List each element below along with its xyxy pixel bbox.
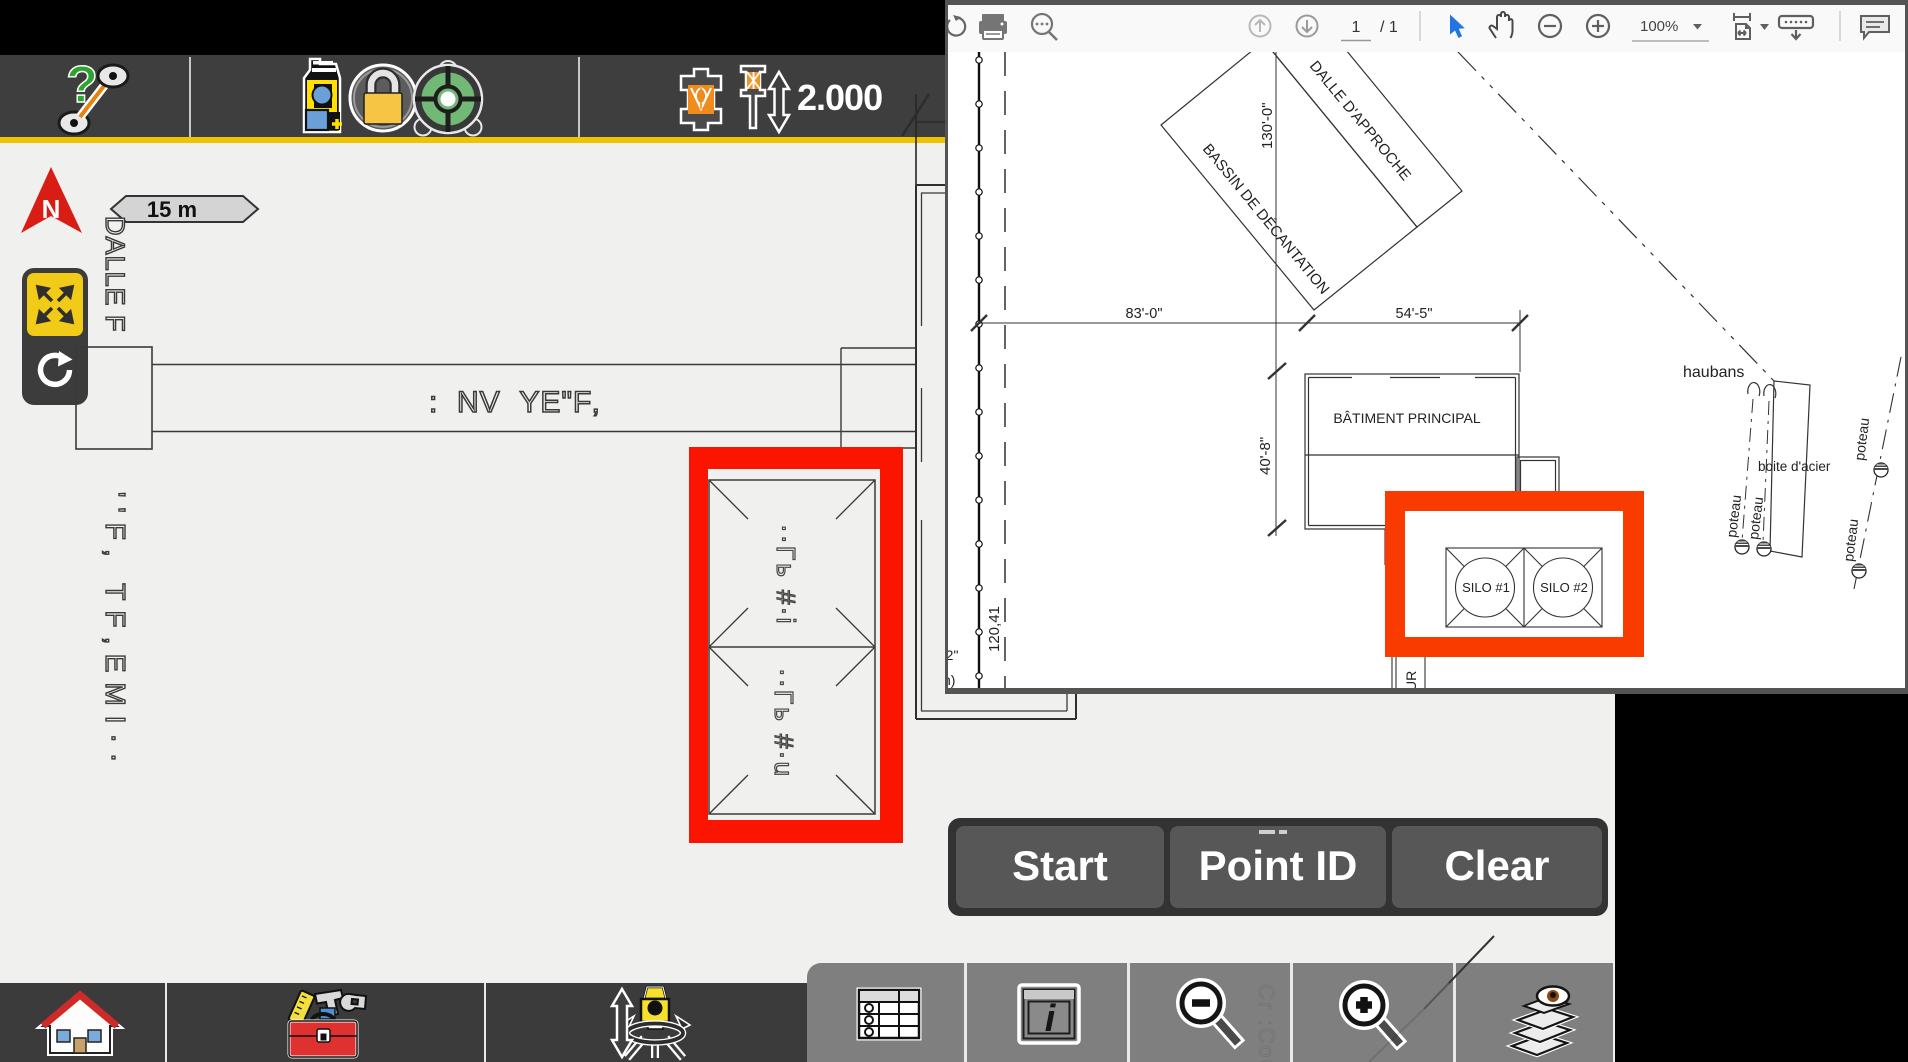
svg-text:54'-5": 54'-5" xyxy=(1396,306,1433,322)
svg-text:poteau: poteau xyxy=(1851,417,1872,461)
svg-text:DALLE D'APPROCHE: DALLE D'APPROCHE xyxy=(1306,58,1414,184)
svg-text:83'-0": 83'-0" xyxy=(1126,306,1163,322)
svg-text:poteau: poteau xyxy=(1723,494,1744,538)
svg-text:1: 1 xyxy=(1352,19,1361,36)
svg-text:··Γь #·i: ··Γь #·i xyxy=(771,524,801,626)
svg-text:N: N xyxy=(42,194,61,224)
svg-text:'2": '2" xyxy=(948,647,958,663)
svg-text:SILO #1: SILO #1 xyxy=(1462,580,1510,595)
svg-text:poteau: poteau xyxy=(1840,518,1861,562)
svg-text:poteau: poteau xyxy=(1745,496,1766,540)
svg-text:SILO #2: SILO #2 xyxy=(1540,580,1588,595)
svg-text:BÂTIMENT PRINCIPAL: BÂTIMENT PRINCIPAL xyxy=(1333,410,1481,426)
svg-text:100%: 100% xyxy=(1640,18,1678,35)
svg-text:haubans: haubans xyxy=(1683,364,1744,381)
svg-text:DALLE F: DALLE F xyxy=(100,216,130,333)
svg-text:120,41: 120,41 xyxy=(986,606,1003,652)
svg-text:h): h) xyxy=(948,672,955,688)
svg-text:130'-0": 130'-0" xyxy=(1259,102,1276,149)
svg-text:boite d'acier: boite d'acier xyxy=(1758,459,1831,474)
svg-text:UR: UR xyxy=(1403,671,1419,688)
svg-text:''F‚ TF‚EMI··: ''F‚ TF‚EMI·· xyxy=(100,492,131,772)
svg-text:BASSIN DE DÉCANTATION: BASSIN DE DÉCANTATION xyxy=(1199,141,1333,298)
svg-text:/ 1: / 1 xyxy=(1380,19,1398,36)
svg-text:40'-8": 40'-8" xyxy=(1257,437,1274,475)
svg-text:15 m: 15 m xyxy=(147,197,197,222)
svg-text:: NV YE"F‚: : NV YE"F‚ xyxy=(429,386,600,419)
svg-text:··Γь #·u: ··Γь #·u xyxy=(769,668,799,779)
